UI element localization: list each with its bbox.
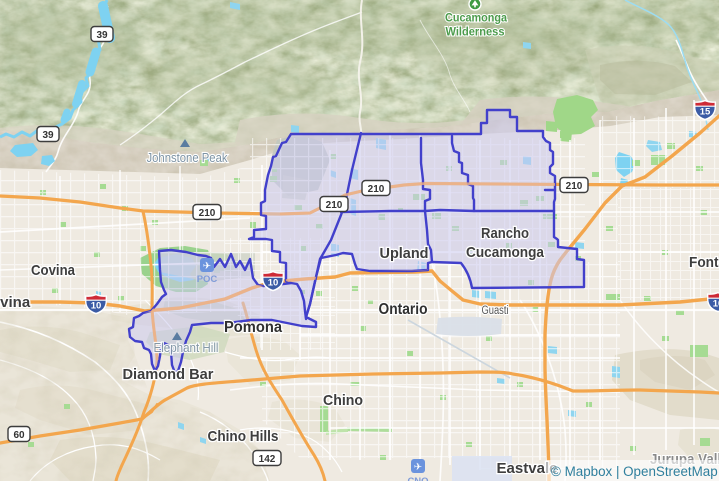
svg-text:15: 15 [700, 107, 711, 118]
svg-text:210: 210 [199, 208, 216, 219]
svg-text:© Mapbox | OpenStreetMap: © Mapbox | OpenStreetMap [551, 464, 718, 479]
svg-text:Rancho: Rancho [481, 225, 529, 242]
svg-text:CNO: CNO [407, 476, 428, 481]
svg-text:✈: ✈ [414, 462, 422, 473]
svg-text:10: 10 [91, 301, 102, 312]
svg-text:210: 210 [566, 181, 583, 192]
svg-text:Chino: Chino [323, 392, 363, 409]
svg-text:210: 210 [326, 200, 343, 211]
svg-text:210: 210 [368, 184, 385, 195]
svg-text:142: 142 [259, 454, 276, 465]
svg-text:POC: POC [197, 274, 218, 285]
svg-text:39: 39 [42, 130, 54, 141]
svg-text:Chino Hills: Chino Hills [208, 428, 279, 445]
svg-text:Elephant Hill: Elephant Hill [154, 341, 219, 355]
svg-text:Johnstone Peak: Johnstone Peak [147, 151, 229, 165]
svg-text:Covina: Covina [31, 262, 76, 279]
svg-text:Fontana: Fontana [689, 254, 719, 271]
svg-text:ovina: ovina [0, 294, 31, 311]
svg-text:39: 39 [96, 30, 108, 41]
svg-text:Upland: Upland [380, 245, 429, 262]
svg-text:Wilderness: Wilderness [446, 27, 505, 39]
svg-text:Ontario: Ontario [379, 301, 428, 318]
svg-text:Cucamonga: Cucamonga [466, 244, 545, 261]
svg-text:Cucamonga: Cucamonga [445, 13, 508, 25]
svg-text:Pomona: Pomona [224, 319, 282, 336]
svg-text:Guasti: Guasti [482, 305, 509, 317]
svg-text:60: 60 [13, 430, 25, 441]
svg-text:10: 10 [713, 299, 719, 310]
svg-text:✈: ✈ [203, 261, 211, 272]
svg-text:10: 10 [268, 278, 279, 289]
svg-text:Diamond Bar: Diamond Bar [123, 366, 214, 383]
